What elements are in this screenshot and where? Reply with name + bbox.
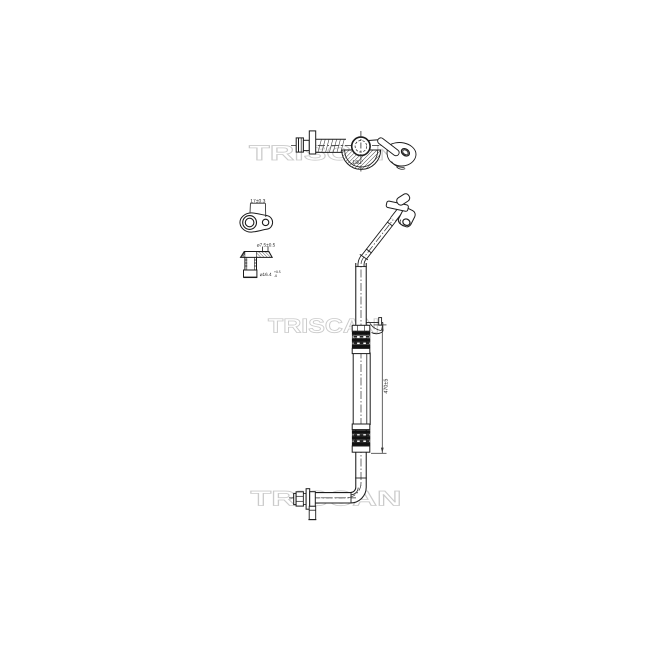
svg-text:⌀7.5±0.5: ⌀7.5±0.5	[257, 242, 276, 247]
svg-text:470±5: 470±5	[383, 379, 389, 394]
svg-text:17±0.3: 17±0.3	[250, 199, 265, 205]
svg-text:⌀16.4: ⌀16.4	[260, 272, 272, 277]
svg-text:180°: 180°	[352, 160, 363, 166]
svg-text:-0: -0	[274, 274, 277, 278]
